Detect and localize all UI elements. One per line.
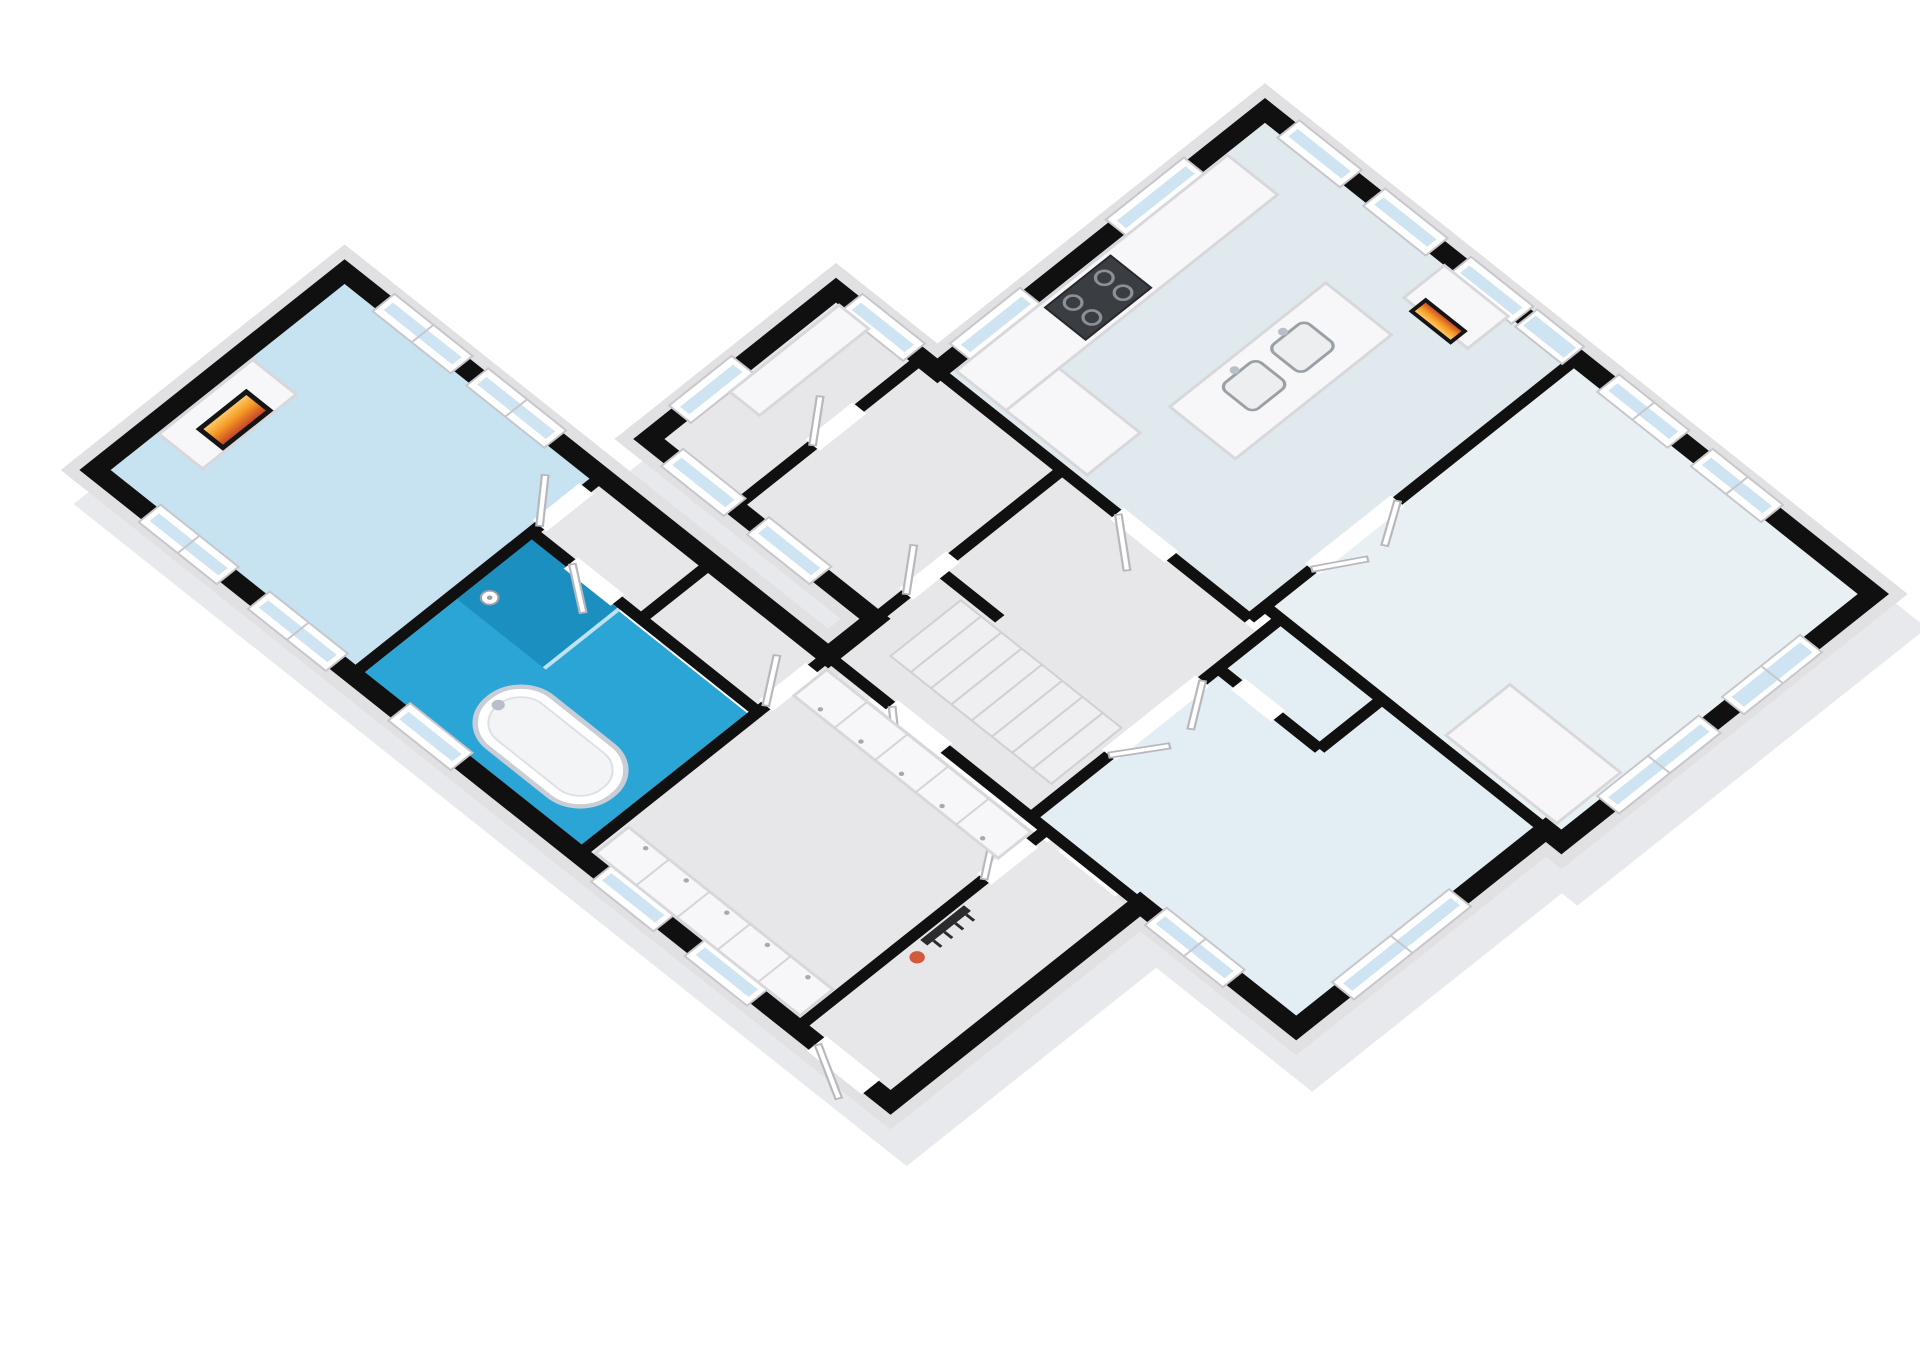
floor-plan-canvas (0, 0, 1920, 1358)
floor-plan-svg (0, 0, 1920, 1358)
